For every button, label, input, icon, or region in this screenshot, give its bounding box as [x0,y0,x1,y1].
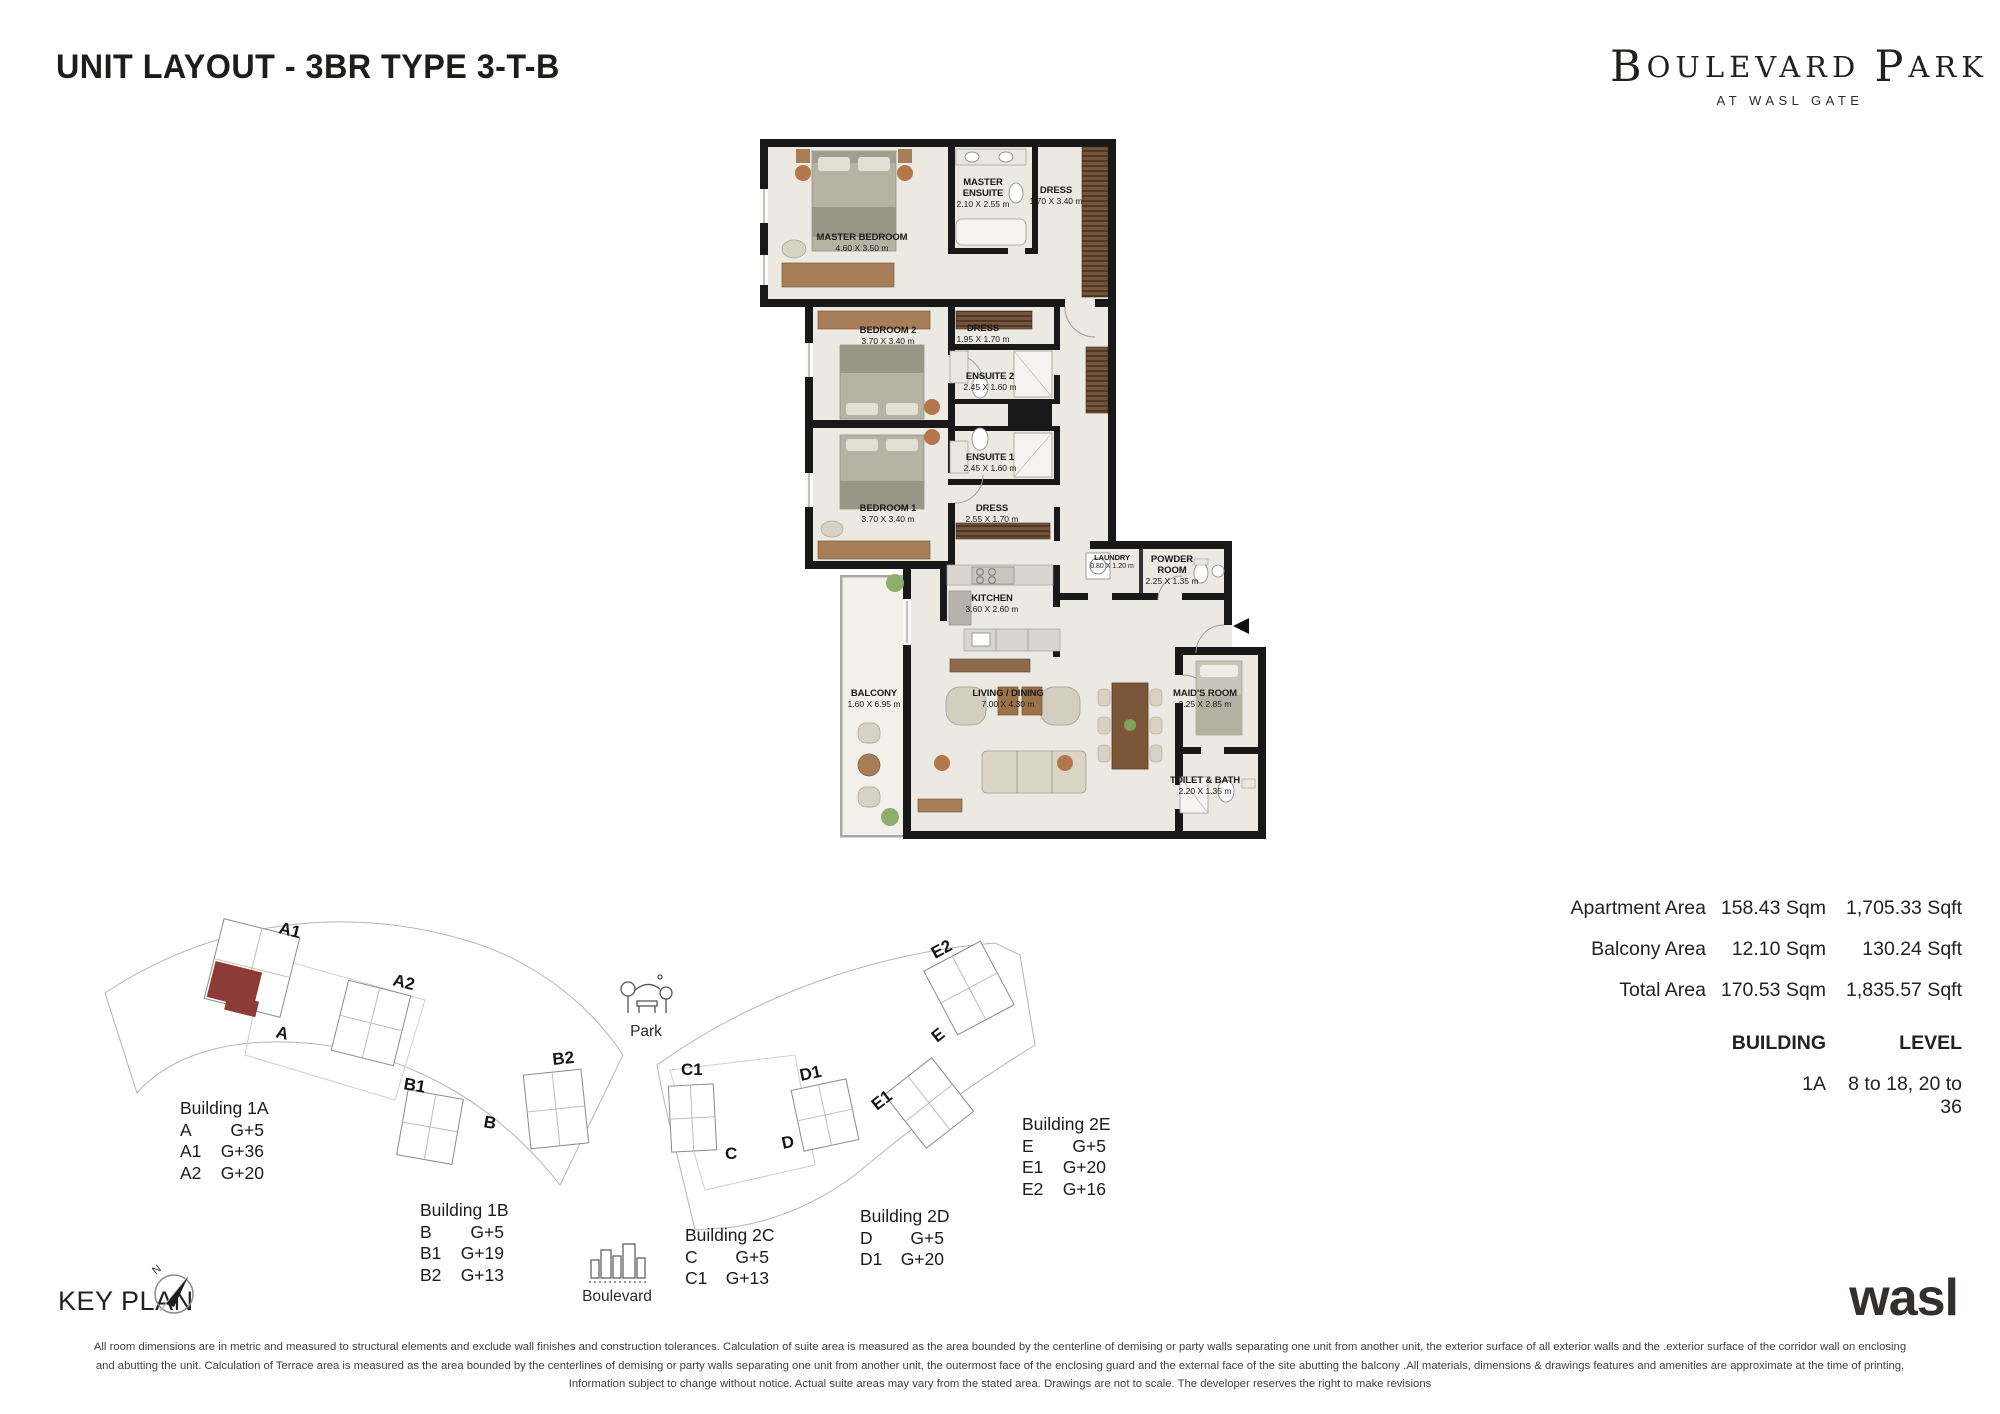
brand-word-2: ARK [1908,50,1987,84]
legend-floors: G+20 [1063,1157,1106,1179]
label-b1: B1 [402,1074,427,1096]
disclaimer-line: and abutting the unit. Calculation of Te… [40,1357,1960,1376]
unit-floor-plan: MASTER BEDROOM4.60 X 3.50 m MASTER ENSUI… [760,135,1275,840]
building-header: BUILDING [1706,1032,1826,1055]
room-label-master-ensuite: MASTER ENSUITE2.10 X 2.55 m [952,177,1014,209]
room-name: DRESS [1030,185,1083,196]
room-dims: 4.60 X 3.50 m [817,243,908,253]
room-name: LAUNDRY [1090,554,1134,563]
legend-row: B2G+13 [420,1265,504,1287]
room-name: POWDER ROOM [1141,554,1203,576]
room-name: ENSUITE 1 [964,452,1017,463]
table-row: Total Area170.53 Sqm1,835.57 Sqft [1558,979,1962,1002]
room-name: BEDROOM 1 [860,503,917,514]
area-label: Total Area [1558,979,1706,1002]
park-label: Park [630,1023,662,1040]
legend-unit: D1 [860,1249,882,1271]
room-label-master-bedroom: MASTER BEDROOM4.60 X 3.50 m [817,232,908,253]
legend-row: D1G+20 [860,1249,944,1271]
building-b1-footprint [397,1090,464,1165]
legend-floors: G+5 [910,1228,944,1250]
room-dims: 1.60 X 6.95 m [848,699,901,709]
entry-arrow-icon [1233,618,1249,634]
room-dims: 3.60 X 2.60 m [966,604,1019,614]
room-label-powder-room: POWDER ROOM2.25 X 1.35 m [1141,554,1203,586]
room-name: KITCHEN [966,593,1019,604]
legend-floors: G+20 [901,1249,944,1271]
legend-unit: B [420,1222,432,1244]
legend-floors: G+16 [1063,1179,1106,1201]
boulevard-label: Boulevard [582,1288,652,1305]
legend-row: C1G+13 [685,1268,769,1290]
legend-row: E2G+16 [1022,1179,1106,1201]
legend-building-2e: Building 2E EG+5 E1G+20 E2G+16 [1022,1114,1111,1200]
legend-unit: B1 [420,1243,441,1265]
page-title: UNIT LAYOUT - 3BR TYPE 3-T-B [56,48,560,87]
legend-unit: E1 [1022,1157,1043,1179]
level-header: LEVEL [1826,1032,1962,1055]
room-label-maids-room: MAID'S ROOM2.25 X 2.85 m [1173,688,1237,709]
room-dims: 0.80 X 1.20 m [1090,563,1134,571]
brand-logo: BOULEVARD PARK AT WASL GATE [1610,50,1970,108]
brochure-page: UNIT LAYOUT - 3BR TYPE 3-T-B BOULEVARD P… [0,0,2000,1414]
legend-building-2d: Building 2D DG+5 D1G+20 [860,1206,950,1271]
legend-floors: G+5 [1072,1136,1106,1158]
legend-title: Building 1B [420,1200,509,1222]
label-c1: C1 [681,1060,703,1079]
room-dims: 2.25 X 2.85 m [1173,699,1237,709]
legend-row: B1G+19 [420,1243,504,1265]
legend-building-1b: Building 1B BG+5 B1G+19 B2G+13 [420,1200,509,1286]
room-name: LIVING / DINING [972,688,1043,699]
legend-unit: A1 [180,1141,201,1163]
legend-title: Building 2C [685,1225,775,1247]
room-label-laundry: LAUNDRY0.80 X 1.20 m [1090,554,1134,571]
room-name: MASTER BEDROOM [817,232,908,243]
legend-building-2c: Building 2C CG+5 C1G+13 [685,1225,775,1290]
legend-floors: G+36 [221,1141,264,1163]
disclaimer-text: All room dimensions are in metric and me… [40,1338,1960,1394]
room-name: DRESS [957,323,1010,334]
legend-floors: G+19 [461,1243,504,1265]
room-label-living-dining: LIVING / DINING7.00 X 4.30 m [972,688,1043,709]
label-b: B [482,1112,497,1133]
area-table: Apartment Area158.43 Sqm1,705.33 Sqft Ba… [1558,897,1962,1137]
brand-wordmark: BOULEVARD PARK [1610,50,1970,84]
room-dims: 2.10 X 2.55 m [952,199,1014,209]
table-row: 1A8 to 18, 20 to 36 [1558,1073,1962,1119]
brand-initial-b: B [1610,42,1647,92]
area-sqft: 130.24 Sqft [1826,938,1962,961]
building-d1-footprint [791,1079,859,1151]
room-label-bedroom2: BEDROOM 23.70 X 3.40 m [860,325,917,346]
room-label-kitchen: KITCHEN3.60 X 2.60 m [966,593,1019,614]
area-sqft: 1,705.33 Sqft [1826,897,1962,920]
room-name: BALCONY [848,688,901,699]
disclaimer-line: All room dimensions are in metric and me… [40,1338,1960,1357]
room-label-dress-master: DRESS1.70 X 3.40 m [1030,185,1083,206]
label-b2: B2 [551,1048,575,1069]
compass-icon: N [146,1262,202,1318]
disclaimer-line: Information subject to change without no… [40,1375,1960,1394]
boulevard-icon [589,1244,646,1282]
room-dims: 2.55 X 1.70 m [966,514,1019,524]
legend-unit: B2 [420,1265,441,1287]
room-dims: 2.45 X 1.60 m [964,382,1017,392]
legend-unit: C1 [685,1268,707,1290]
legend-unit: A2 [180,1163,201,1185]
legend-floors: G+5 [735,1247,769,1269]
legend-floors: G+20 [221,1163,264,1185]
label-c: C [725,1144,737,1163]
room-dims: 1.70 X 3.40 m [1030,196,1083,206]
legend-unit: E2 [1022,1179,1043,1201]
legend-row: BG+5 [420,1222,504,1244]
legend-unit: D [860,1228,873,1250]
legend-unit: C [685,1247,698,1269]
dining-table-icon [1098,683,1162,769]
room-dims: 3.70 X 3.40 m [860,336,917,346]
room-name: MASTER ENSUITE [952,177,1014,199]
room-dims: 2.45 X 1.60 m [964,463,1017,473]
brand-subtitle: AT WASL GATE [1610,93,1970,108]
legend-row: DG+5 [860,1228,944,1250]
building-value: 1A [1706,1073,1826,1119]
room-name: MAID'S ROOM [1173,688,1237,699]
legend-title: Building 2E [1022,1114,1111,1136]
compass-n-label: N [150,1263,164,1277]
building-b2-footprint [523,1069,588,1149]
room-dims: 1.95 X 1.70 m [957,334,1010,344]
room-label-balcony: BALCONY1.60 X 6.95 m [848,688,901,709]
area-sqm: 12.10 Sqm [1706,938,1826,961]
legend-floors: G+13 [726,1268,769,1290]
room-label-dress-mid: DRESS1.95 X 1.70 m [957,323,1010,344]
room-dims: 2.25 X 1.35 m [1141,576,1203,586]
legend-row: AG+5 [180,1120,264,1142]
room-name: TOILET & BATH [1170,775,1240,786]
wasl-logo: wasl [1849,1268,1958,1328]
area-label: Apartment Area [1558,897,1706,920]
brand-word-1: OULEVARD [1647,50,1861,84]
legend-title: Building 2D [860,1206,950,1228]
room-dims: 7.00 X 4.30 m [972,699,1043,709]
legend-building-1a: Building 1A AG+5 A1G+36 A2G+20 [180,1098,269,1184]
legend-unit: A [180,1120,192,1142]
room-label-toilet-bath: TOILET & BATH2.20 X 1.35 m [1170,775,1240,796]
legend-floors: G+5 [470,1222,504,1244]
legend-floors: G+13 [461,1265,504,1287]
room-label-bedroom1: BEDROOM 13.70 X 3.40 m [860,503,917,524]
legend-title: Building 1A [180,1098,269,1120]
room-name: BEDROOM 2 [860,325,917,336]
area-sqft: 1,835.57 Sqft [1826,979,1962,1002]
legend-row: A1G+36 [180,1141,264,1163]
level-value: 8 to 18, 20 to 36 [1826,1073,1962,1119]
room-dims: 3.70 X 3.40 m [860,514,917,524]
room-name: DRESS [966,503,1019,514]
room-dims: 2.20 X 1.35 m [1170,786,1240,796]
area-sqm: 158.43 Sqm [1706,897,1826,920]
legend-row: E1G+20 [1022,1157,1106,1179]
legend-row: CG+5 [685,1247,769,1269]
legend-row: EG+5 [1022,1136,1106,1158]
table-header-row: BUILDINGLEVEL [1558,1032,1962,1055]
legend-floors: G+5 [230,1120,264,1142]
room-name: ENSUITE 2 [964,371,1017,382]
room-label-ensuite2: ENSUITE 22.45 X 1.60 m [964,371,1017,392]
brand-initial-p: P [1874,42,1908,92]
legend-row: A2G+20 [180,1163,264,1185]
legend-unit: E [1022,1136,1034,1158]
room-label-dress-lower: DRESS2.55 X 1.70 m [966,503,1019,524]
building-c1-footprint [668,1084,716,1152]
room-label-ensuite1: ENSUITE 12.45 X 1.60 m [964,452,1017,473]
park-icon [621,975,672,1013]
table-row: Balcony Area12.10 Sqm130.24 Sqft [1558,938,1962,961]
area-label: Balcony Area [1558,938,1706,961]
area-sqm: 170.53 Sqm [1706,979,1826,1002]
table-row: Apartment Area158.43 Sqm1,705.33 Sqft [1558,897,1962,920]
